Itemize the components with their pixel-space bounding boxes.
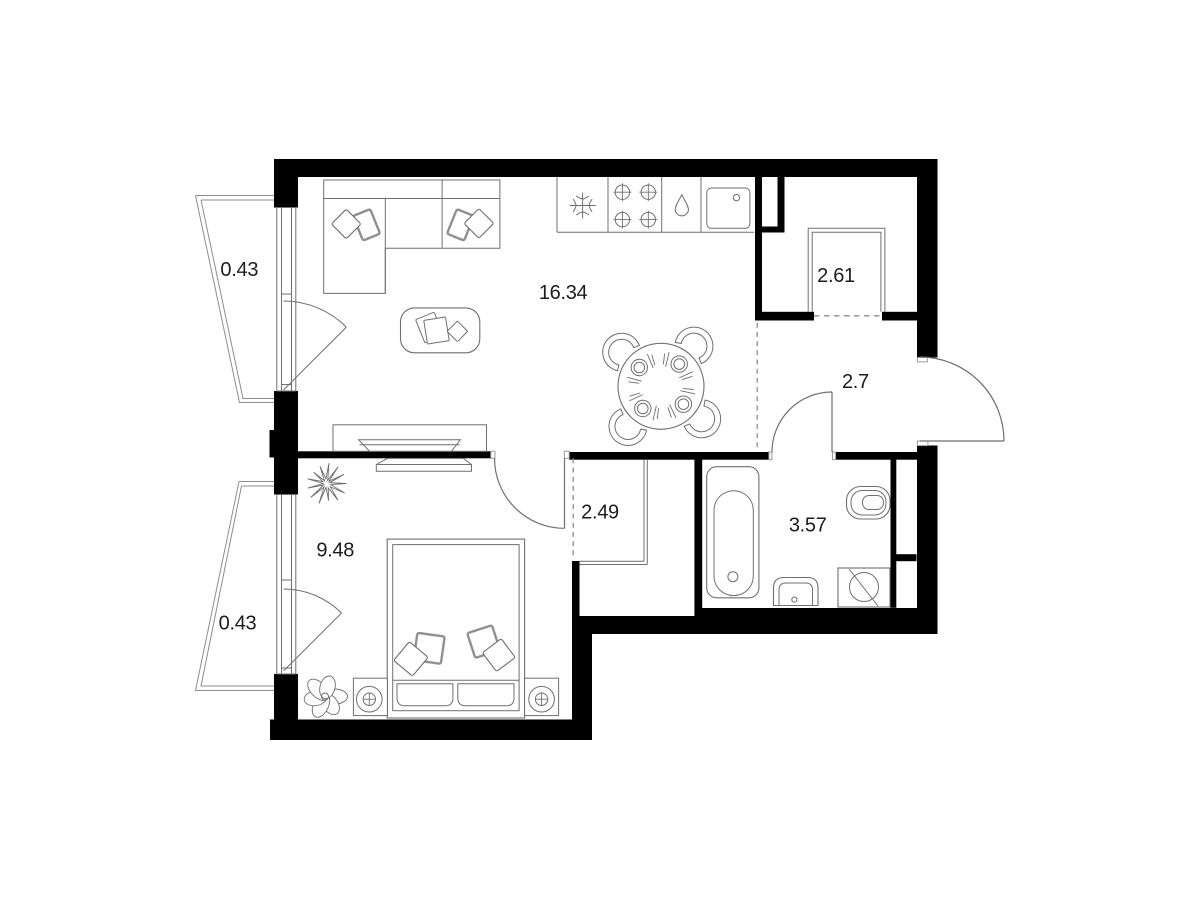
svg-text:0.43: 0.43: [220, 259, 258, 281]
svg-text:16.34: 16.34: [539, 282, 588, 304]
svg-text:0.43: 0.43: [219, 612, 257, 634]
svg-text:2.61: 2.61: [817, 265, 855, 287]
svg-text:9.48: 9.48: [316, 540, 354, 562]
svg-text:2.7: 2.7: [842, 371, 869, 393]
svg-text:2.49: 2.49: [581, 501, 619, 523]
svg-text:3.57: 3.57: [789, 515, 827, 537]
